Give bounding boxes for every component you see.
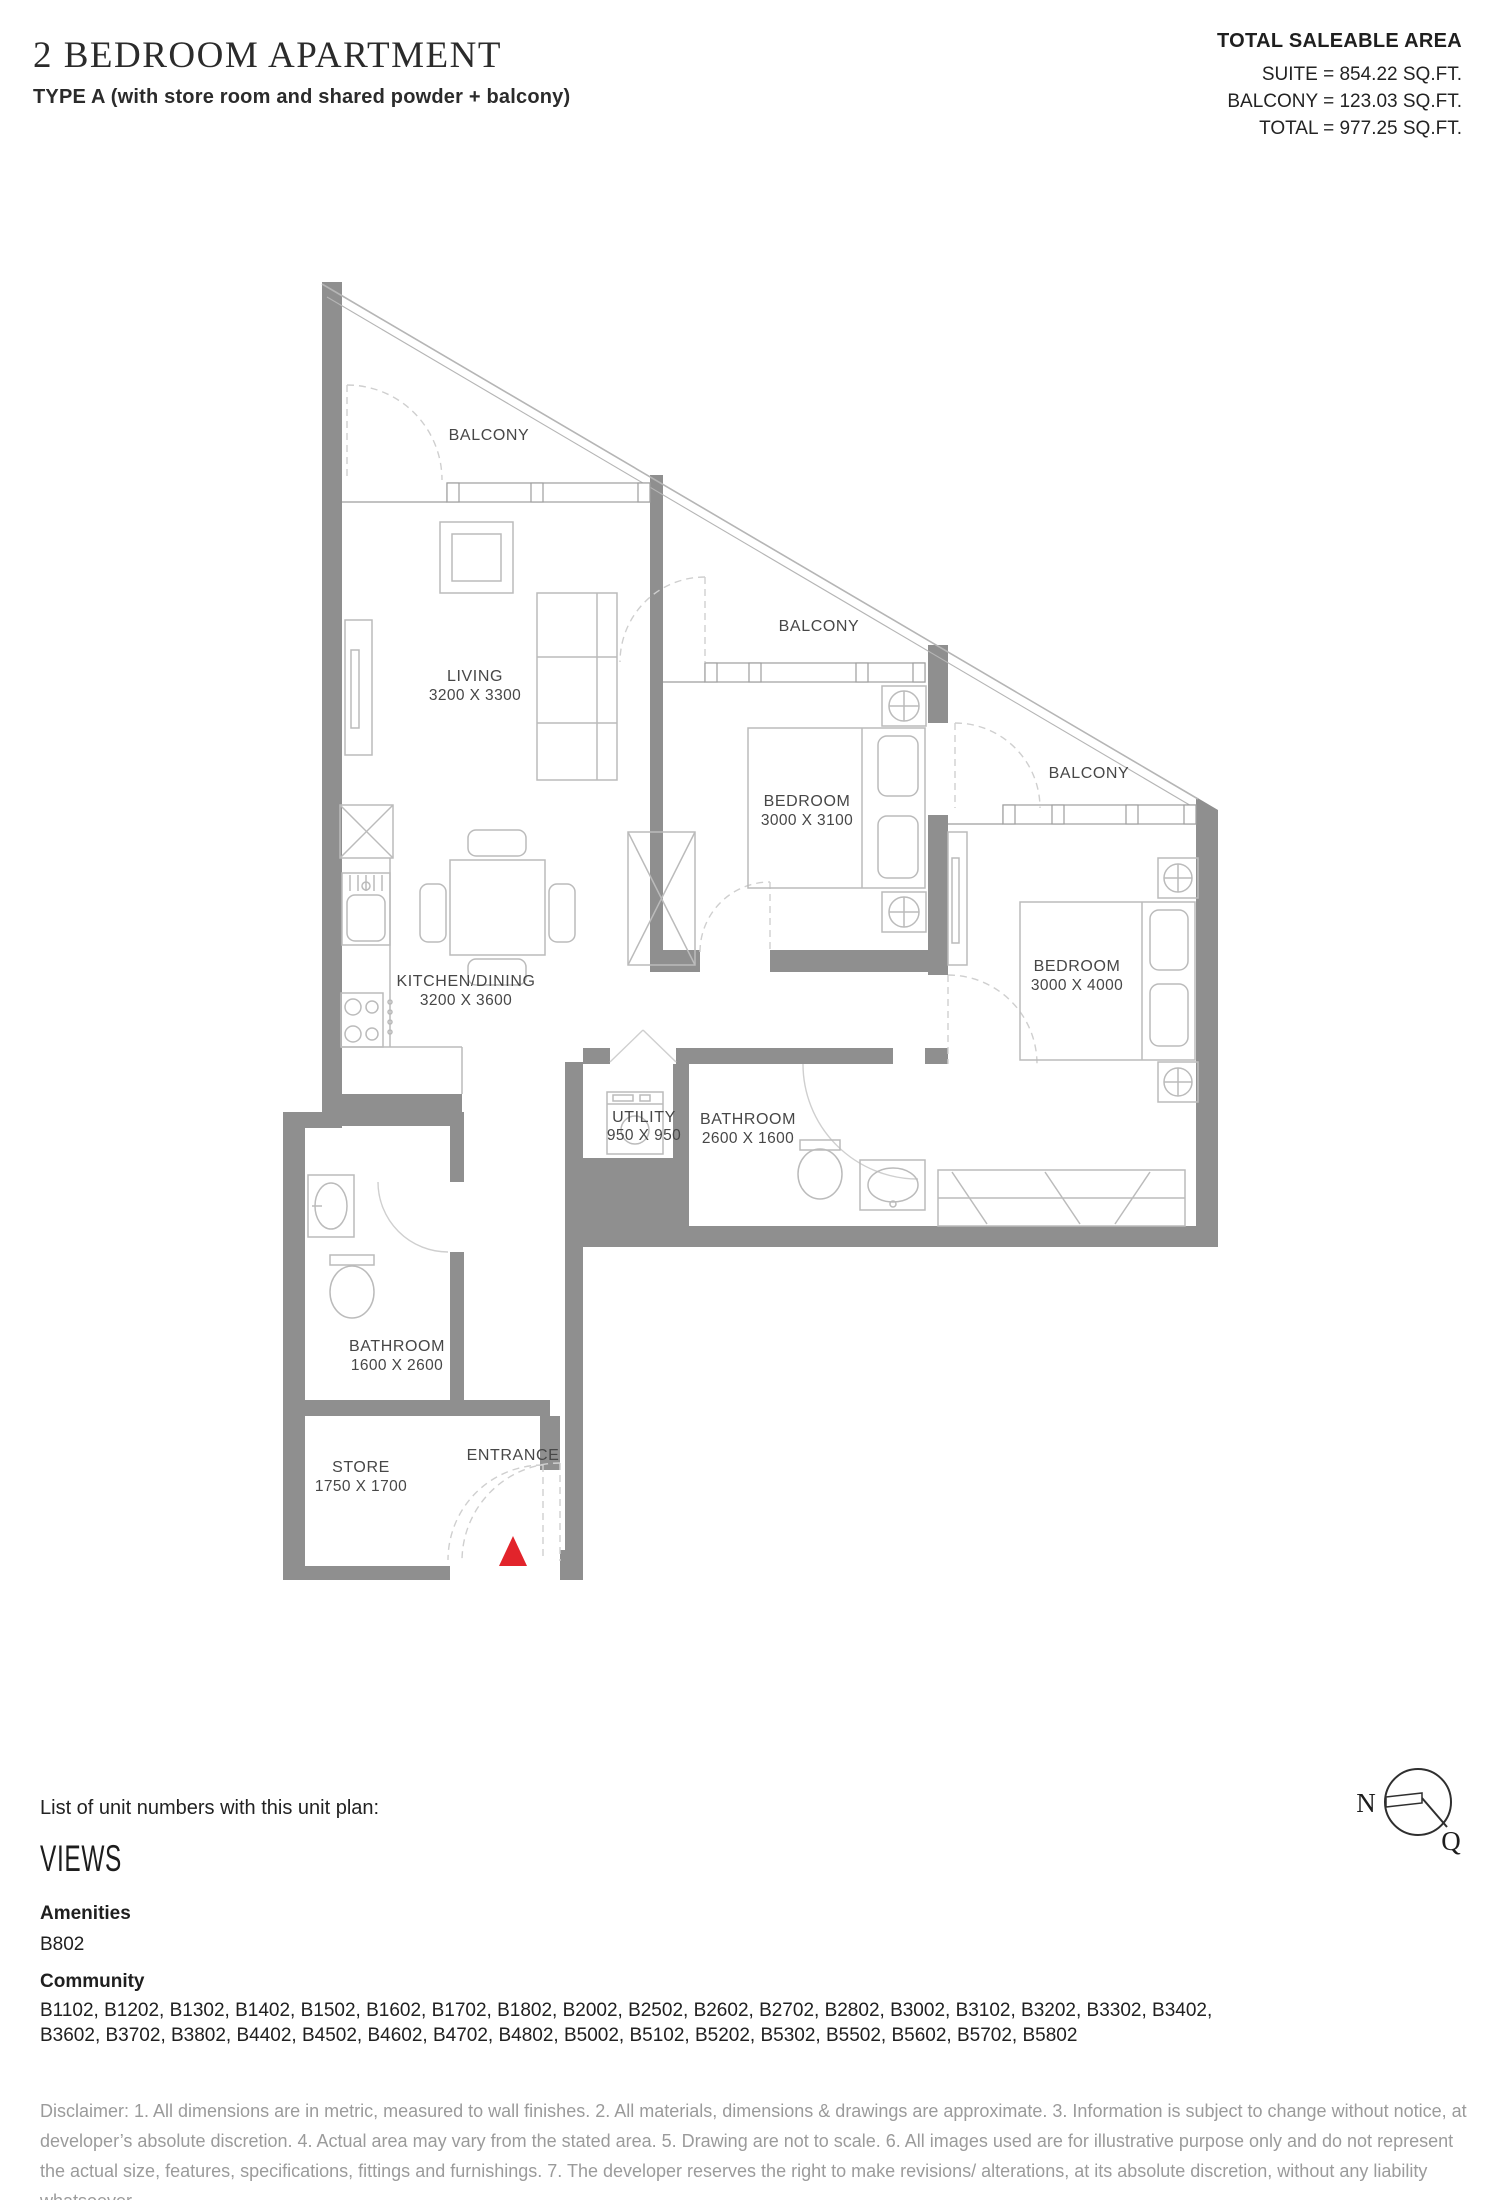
vanity: [860, 1160, 925, 1210]
room-labels: BALCONY BALCONY BALCONY LIVING 3200 X 33…: [315, 427, 1130, 1495]
compass: N Q: [1356, 1769, 1461, 1856]
powder-toilet: [330, 1255, 374, 1318]
compass-qibla-label: Q: [1441, 1826, 1461, 1856]
kitchen-sink: [342, 873, 390, 945]
room-dims-kitchen: 3200 X 3600: [420, 992, 512, 1009]
room-dims-living: 3200 X 3300: [429, 687, 521, 704]
room-label-bathroom-2: BATHROOM: [349, 1338, 445, 1355]
disclaimer-text: Disclaimer: 1. All dimensions are in met…: [40, 2096, 1470, 2200]
room-label-bedroom-1: BEDROOM: [764, 793, 851, 810]
room-dims-bathroom-1: 2600 X 1600: [702, 1130, 794, 1147]
balcony-label: BALCONY: [779, 618, 860, 635]
room-dims-bedroom-2: 3000 X 4000: [1031, 977, 1123, 994]
walls: [283, 282, 1218, 1580]
amenities-label: Amenities: [40, 1903, 131, 1925]
furniture: [308, 522, 1198, 1318]
amenities-units: B802: [40, 1934, 84, 1956]
community-unit-numbers: B1102, B1202, B1302, B1402, B1502, B1602…: [40, 1998, 1212, 2048]
fridge: [340, 805, 393, 858]
compass-north-label: N: [1356, 1788, 1376, 1818]
views-heading: VIEWS: [40, 1838, 122, 1880]
unit-numbers-line-1: B1102, B1202, B1302, B1402, B1502, B1602…: [40, 1998, 1212, 2023]
bedside-stool: [882, 892, 926, 932]
tv-unit: [345, 620, 372, 755]
room-label-utility: UTILITY: [612, 1109, 676, 1126]
room-label-bathroom-1: BATHROOM: [700, 1111, 796, 1128]
balcony-label: BALCONY: [1049, 765, 1130, 782]
room-label-store: STORE: [332, 1459, 390, 1476]
stove: [341, 993, 392, 1047]
bedside-stool: [1158, 1062, 1198, 1102]
compass-needle: [1386, 1793, 1422, 1807]
room-dims-bedroom-1: 3000 X 3100: [761, 812, 853, 829]
powder-sink: [308, 1175, 354, 1237]
living-rug: [440, 522, 513, 593]
sofa: [537, 593, 617, 780]
entrance-marker: [499, 1536, 527, 1566]
room-dims-bathroom-2: 1600 X 2600: [351, 1357, 443, 1374]
bedside-stool: [1158, 858, 1198, 898]
room-label-kitchen: KITCHEN/DINING: [396, 973, 535, 990]
room-dims-store: 1750 X 1700: [315, 1478, 407, 1495]
dining-table: [420, 830, 575, 985]
balcony-label: BALCONY: [449, 427, 530, 444]
wardrobe: [938, 1170, 1185, 1226]
unit-numbers-line-2: B3602, B3702, B3802, B4402, B4502, B4602…: [40, 2023, 1212, 2048]
room-dims-utility: 950 X 950: [607, 1127, 681, 1144]
unit-list-title: List of unit numbers with this unit plan…: [40, 1797, 379, 1820]
bedside-stool: [882, 686, 926, 726]
entrance-label: ENTRANCE: [467, 1447, 560, 1464]
floor-plan-page: 2 BEDROOM APARTMENT TYPE A (with store r…: [0, 0, 1500, 2200]
community-label: Community: [40, 1971, 145, 1993]
room-label-living: LIVING: [447, 668, 503, 685]
toilet: [798, 1140, 842, 1199]
floor-plan-drawing: BALCONY BALCONY BALCONY LIVING 3200 X 33…: [0, 0, 1500, 2200]
room-label-bedroom-2: BEDROOM: [1034, 958, 1121, 975]
tv-panel: [948, 832, 967, 965]
